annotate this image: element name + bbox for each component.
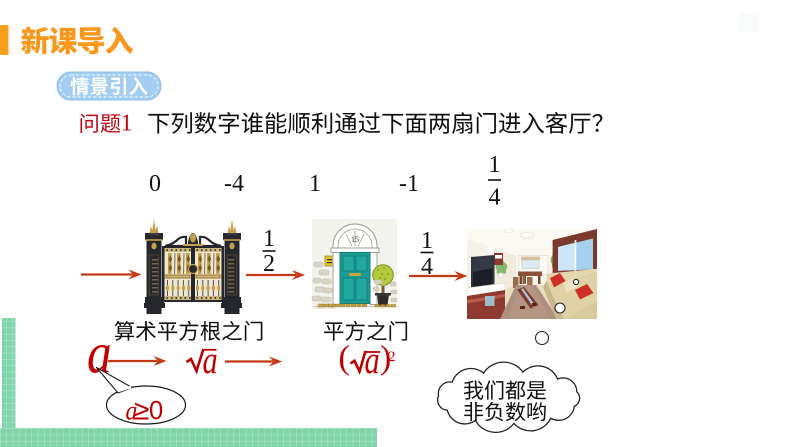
svg-text:2: 2 <box>388 349 396 365</box>
svg-text:a: a <box>365 338 380 381</box>
svg-text:1: 1 <box>121 111 133 137</box>
svg-text:1: 1 <box>489 152 501 178</box>
svg-text:≥: ≥ <box>134 395 149 426</box>
svg-text:4: 4 <box>421 254 433 280</box>
svg-text:1: 1 <box>421 228 433 254</box>
svg-text:-1: -1 <box>399 171 419 197</box>
svg-text:0: 0 <box>149 397 163 425</box>
svg-text:-4: -4 <box>224 171 244 197</box>
svg-text:0: 0 <box>149 171 161 197</box>
svg-text:a: a <box>203 338 218 381</box>
svg-text:15: 15 <box>351 235 359 244</box>
svg-text:1: 1 <box>263 226 275 252</box>
svg-text:(: ( <box>339 340 350 377</box>
svg-text:1: 1 <box>309 171 321 197</box>
svg-text:2: 2 <box>263 251 275 277</box>
svg-text:4: 4 <box>489 185 501 211</box>
